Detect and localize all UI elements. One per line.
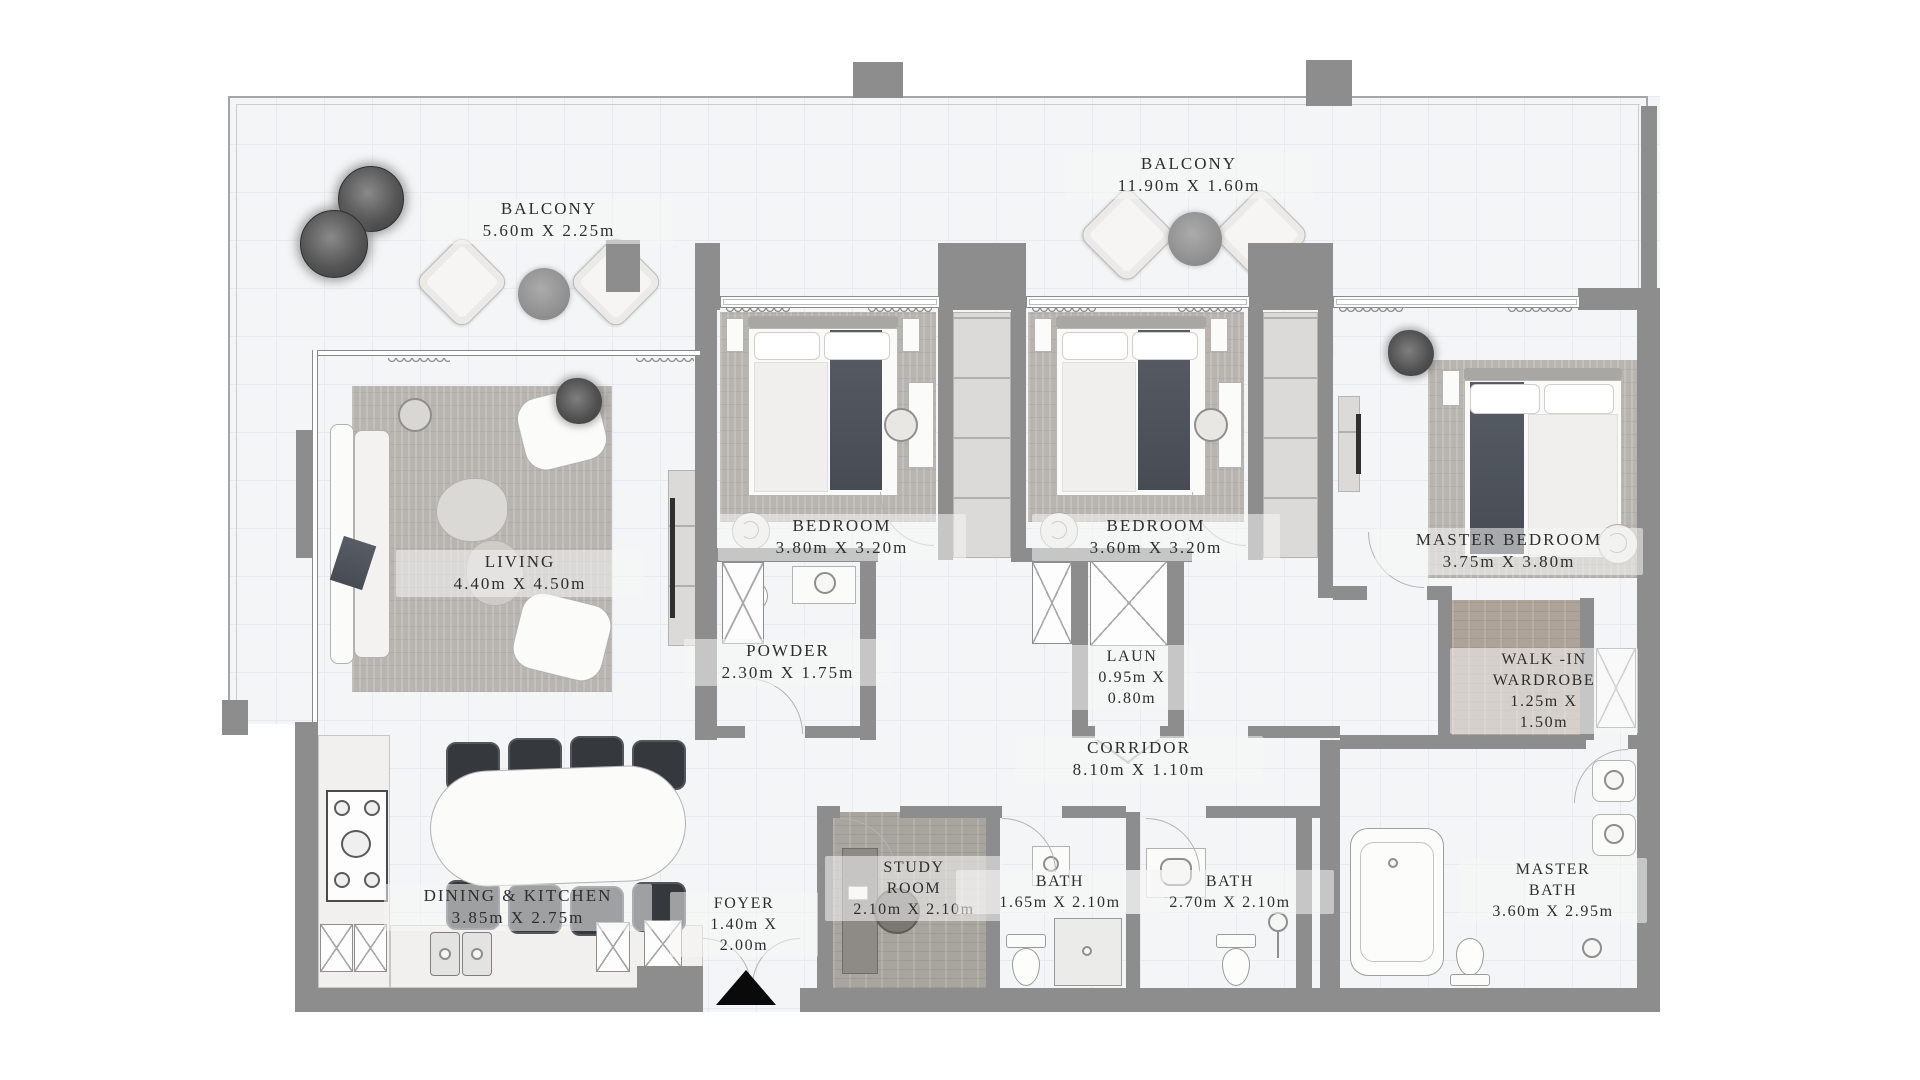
wall-bedroom2-west — [1011, 310, 1026, 560]
tv-screen — [670, 498, 675, 618]
room-dims: 4.40m X 4.50m — [454, 573, 587, 595]
wall-masterbath-north — [1340, 735, 1586, 749]
window-master-bedroom — [1333, 296, 1580, 308]
pillow — [754, 332, 820, 360]
stove-burner — [341, 830, 371, 858]
room-dims: 0.95m X — [1098, 667, 1165, 688]
room-label-living: LIVING 4.40m X 4.50m — [396, 550, 644, 597]
wall-segment — [1248, 243, 1333, 310]
room-label-corridor: CORRIDOR 8.10m X 1.10m — [1015, 736, 1263, 783]
entrance-arrow — [716, 970, 776, 1005]
cabinet-x — [320, 924, 353, 972]
room-name: MASTER BEDROOM — [1416, 529, 1602, 551]
bed-headboard — [748, 316, 898, 328]
closet-x — [722, 562, 764, 644]
wall-segment — [222, 700, 248, 735]
plant-shrub — [556, 378, 602, 424]
window-bedroom-2 — [1026, 296, 1250, 308]
room-name: POWDER — [746, 640, 830, 662]
room-name: LAUN — [1107, 646, 1158, 667]
room-label-walk-in-wardrobe: WALK -IN WARDROBE 1.25m X 1.50m — [1450, 648, 1638, 734]
wall-bottom-right — [800, 988, 1660, 1012]
room-dims: 11.90m X 1.60m — [1118, 175, 1261, 197]
exterior-mask — [228, 724, 295, 1014]
coffee-table — [436, 478, 508, 542]
curtain — [388, 358, 450, 367]
room-dims: 0.80m — [1108, 688, 1156, 709]
nightstand — [1034, 318, 1052, 352]
shower-head — [1268, 912, 1288, 932]
tub-drain — [1388, 858, 1398, 868]
room-dims: 3.60m X 2.95m — [1492, 901, 1613, 922]
wall-left — [295, 722, 318, 1012]
pillow — [1062, 332, 1128, 360]
sink-drain — [439, 948, 451, 960]
room-name: MASTER — [1516, 859, 1591, 880]
sink-drain — [471, 948, 483, 960]
room-label-bedroom-2: BEDROOM 3.60m X 3.20m — [1032, 514, 1280, 561]
room-name: DINING & KITCHEN — [424, 885, 613, 907]
balcony-railing — [228, 96, 1648, 98]
wall-masterbath-north — [1628, 735, 1637, 749]
curtain — [868, 308, 932, 317]
wall-segment — [938, 243, 1026, 310]
window-bedroom-1 — [720, 296, 940, 308]
curtain — [1032, 308, 1096, 317]
cabinet-x — [354, 924, 387, 972]
room-name: BALCONY — [501, 198, 597, 220]
desk-chair — [884, 408, 918, 442]
shower-pipe — [1277, 932, 1279, 958]
room-label-dining-kitchen: DINING & KITCHEN 3.85m X 2.75m — [384, 884, 652, 931]
balcony-table — [1168, 212, 1222, 266]
balcony-railing-inner — [236, 104, 237, 718]
curtain — [1339, 308, 1403, 317]
room-dims: 3.85m X 2.75m — [452, 907, 585, 929]
wall-corridor-north — [717, 726, 745, 738]
stove-burner — [364, 872, 380, 888]
wall-corridor-north — [805, 726, 860, 738]
wall-right-upper — [1641, 106, 1657, 302]
room-dims: 8.10m X 1.10m — [1073, 759, 1206, 781]
nightstand — [902, 318, 920, 352]
room-dims: 1.65m X 2.10m — [999, 892, 1120, 913]
nightstand — [1210, 318, 1228, 352]
curtain — [1508, 308, 1572, 317]
dining-table — [428, 764, 688, 889]
room-dims: 5.60m X 2.25m — [483, 220, 616, 242]
room-label-bedroom-1: BEDROOM 3.80m X 3.20m — [718, 514, 966, 561]
room-label-powder: POWDER 2.30m X 1.75m — [684, 639, 892, 686]
wall-segment — [1306, 60, 1352, 106]
wall-segment — [853, 62, 903, 98]
wall-corridor-south — [900, 806, 1002, 818]
curtain — [726, 308, 790, 317]
room-name: LIVING — [485, 551, 556, 573]
toilet — [1006, 934, 1046, 948]
bed-headboard — [1464, 368, 1622, 380]
nightstand — [1442, 370, 1460, 406]
plant-shrub — [1388, 330, 1434, 376]
wall-masterbath-west — [1320, 740, 1340, 988]
room-name: BEDROOM — [1106, 515, 1205, 537]
wall-master-west — [1318, 310, 1333, 598]
room-label-balcony-left: BALCONY 5.60m X 2.25m — [425, 197, 673, 244]
shower-drain — [1082, 946, 1092, 956]
room-label-bath-2: BATH 2.70m X 2.10m — [1126, 870, 1334, 914]
room-label-balcony-top: BALCONY 11.90m X 1.60m — [1065, 152, 1313, 199]
room-label-master-bedroom: MASTER BEDROOM 3.75m X 3.80m — [1375, 528, 1643, 575]
room-name: BEDROOM — [792, 515, 891, 537]
bed-blanket — [754, 362, 828, 492]
room-name: BALCONY — [1141, 153, 1237, 175]
room-dims: 1.25m X — [1510, 691, 1577, 712]
room-name: CORRIDOR — [1087, 737, 1191, 759]
plant-tree — [300, 210, 368, 278]
wall-segment — [695, 243, 720, 310]
side-table — [398, 398, 432, 432]
wall-master-south — [1427, 586, 1452, 600]
pillow — [1132, 332, 1198, 360]
wall-segment — [637, 966, 703, 990]
wall-master-south — [1333, 586, 1367, 600]
room-dims: 3.75m X 3.80m — [1443, 551, 1576, 573]
desk-chair — [1194, 408, 1228, 442]
balcony-table — [518, 268, 570, 320]
pillow — [1470, 384, 1540, 414]
closet-x — [1032, 562, 1072, 644]
room-name: BATH — [1206, 871, 1254, 892]
shower-head — [1582, 938, 1602, 958]
room-name: WARDROBE — [1493, 670, 1596, 691]
room-dims: 2.70m X 2.10m — [1169, 892, 1290, 913]
bed-blanket — [1062, 362, 1136, 492]
room-name: ROOM — [887, 878, 941, 899]
laundry-closet — [1090, 560, 1168, 646]
room-label-master-bath: MASTER BATH 3.60m X 2.95m — [1459, 858, 1647, 923]
wall-corridor-south — [1062, 806, 1126, 818]
stove-burner — [334, 872, 350, 888]
tv-screen — [1356, 414, 1361, 474]
curtain — [1178, 308, 1242, 317]
wall-corridor-south — [1206, 806, 1320, 818]
sink-basin — [1604, 824, 1624, 844]
pillow — [1544, 384, 1614, 414]
toilet — [1450, 974, 1490, 986]
room-dims: 3.60m X 3.20m — [1090, 537, 1223, 559]
bed-headboard — [1056, 316, 1206, 328]
glass-wall-living-top — [318, 350, 700, 356]
stove-burner — [364, 800, 380, 816]
stove-burner — [334, 800, 350, 816]
room-label-laundry: LAUN 0.95m X 0.80m — [1068, 645, 1196, 710]
room-name: STUDY — [883, 857, 944, 878]
nightstand — [726, 318, 744, 352]
floor-plan-canvas: BALCONY 5.60m X 2.25m BALCONY 11.90m X 1… — [0, 0, 1920, 1080]
toilet — [1216, 934, 1256, 948]
balcony-railing-inner — [1638, 104, 1639, 302]
room-name: BATH — [1036, 871, 1084, 892]
room-name: FOYER — [714, 893, 774, 914]
balcony-railing — [228, 96, 230, 724]
wall-segment — [1578, 288, 1660, 310]
room-label-foyer: FOYER 1.40m X 2.00m — [670, 892, 818, 957]
room-dims: 2.00m — [720, 935, 768, 956]
room-dims: 3.80m X 3.20m — [776, 537, 909, 559]
structural-column — [606, 240, 640, 292]
room-name: BATH — [1529, 880, 1577, 901]
pillow — [824, 332, 890, 360]
sink-basin — [814, 572, 836, 594]
glass-wall-living-left — [312, 350, 318, 722]
room-name: WALK -IN — [1501, 649, 1586, 670]
wall-corridor-south — [817, 806, 840, 818]
wall-bottom-left — [295, 988, 703, 1012]
room-dims: 1.50m — [1520, 712, 1568, 733]
room-dims: 2.30m X 1.75m — [722, 662, 855, 684]
curtain — [636, 358, 694, 367]
room-dims: 1.40m X — [710, 914, 777, 935]
balcony-railing-inner — [236, 104, 1640, 105]
